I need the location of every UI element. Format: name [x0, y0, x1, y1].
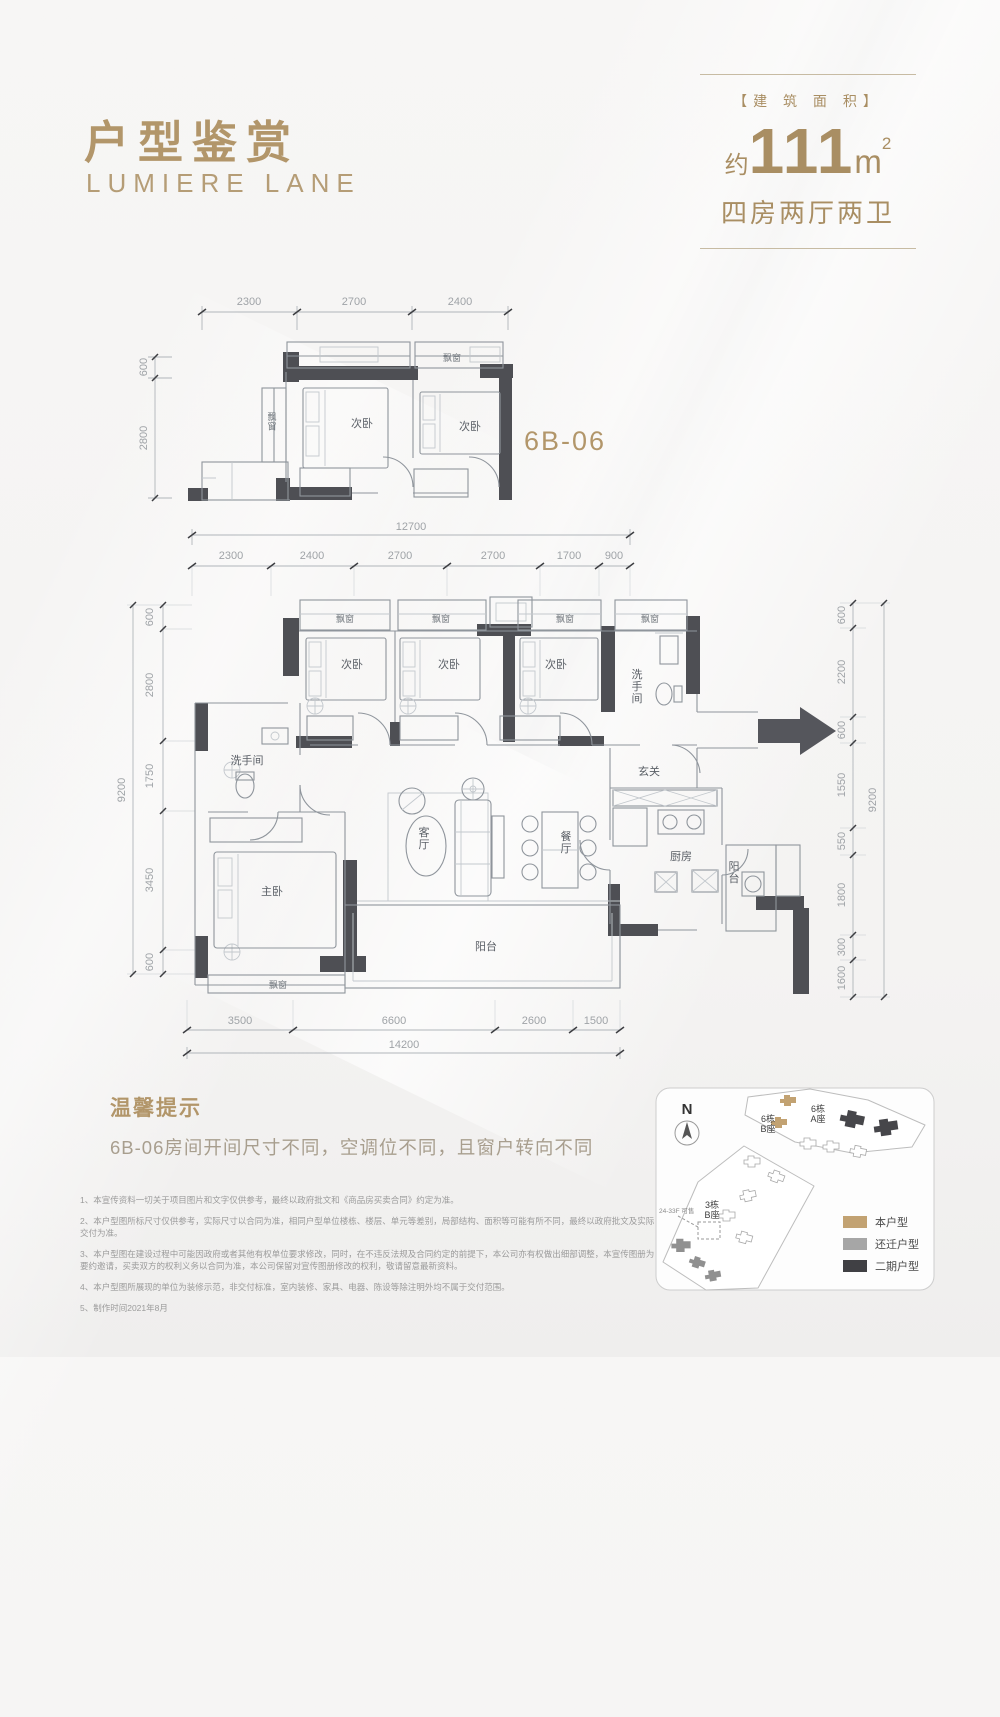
building-label: A座	[810, 1113, 825, 1124]
legend-swatch-phase2	[843, 1260, 867, 1272]
dim-label: 12700	[396, 521, 427, 533]
room-label-living: 客厅	[419, 825, 430, 851]
small-floor-plan: 2300 2700 2400 600 2800	[138, 296, 606, 501]
site-map: N 6栋 B座 6栋 A座	[656, 1088, 934, 1290]
dim-label: 2300	[219, 550, 243, 562]
room-label-balcony: 阳台	[729, 860, 740, 885]
dim-label: 3450	[144, 868, 156, 892]
dim-label: 550	[836, 832, 848, 850]
dim-label: 1800	[836, 883, 848, 907]
room-label-bay: 飘窗	[336, 613, 354, 624]
dim-label: 2700	[388, 550, 412, 562]
dim-label: 2800	[144, 673, 156, 697]
dim-label: 1750	[144, 764, 156, 788]
dim-label: 2700	[481, 550, 505, 562]
room-label-bathroom: 洗手间	[231, 753, 264, 767]
room-label-bay: 飘窗	[267, 412, 276, 432]
disclaimer-item: 3、本户型图在建设过程中可能因政府或者其他有权单位要求修改，同时，在不违反法规及…	[80, 1248, 658, 1272]
dim-label: 600	[144, 608, 156, 626]
dim-label: 1550	[836, 773, 848, 797]
tips-title: 温馨提示	[110, 1092, 202, 1122]
disclaimer-item: 2、本户型图所标尺寸仅供参考，实际尺寸以合同为准，相同户型单位楼栋、楼层、单元等…	[80, 1215, 658, 1239]
room-label-dining: 餐厅	[561, 829, 572, 855]
legend-swatch-current	[843, 1216, 867, 1228]
room-label-bay: 飘窗	[432, 613, 450, 624]
dim-label: 600	[144, 953, 156, 971]
dim-label: 2800	[138, 426, 150, 450]
room-label-entry: 玄关	[638, 764, 660, 778]
site-legend: 本户型 还迁户型 二期户型	[843, 1215, 919, 1273]
room-label-bedroom: 次卧	[438, 657, 460, 671]
room-label-bay: 飘窗	[556, 613, 574, 624]
room-label-kitchen: 厨房	[670, 850, 692, 863]
room-label-bedroom: 次卧	[351, 416, 373, 430]
legend-label: 二期户型	[875, 1259, 919, 1273]
room-label-bay: 飘窗	[443, 352, 461, 363]
room-label-bay: 飘窗	[641, 613, 659, 624]
dim-label: 3500	[228, 1015, 252, 1027]
dim-label: 300	[836, 938, 848, 956]
disclaimer-item: 1、本宣传资料一切关于项目图片和文字仅供参考，最终以政府批文和《商品房买卖合同》…	[80, 1194, 658, 1206]
building-label: 3栋	[705, 1199, 719, 1210]
room-label-balcony: 阳台	[475, 939, 497, 953]
dim-label: 6600	[382, 1015, 406, 1027]
legend-swatch-resettlement	[843, 1238, 867, 1250]
furniture	[210, 633, 764, 960]
building-label: B座	[704, 1209, 719, 1220]
main-floor-plan: 12700 2300 2400 2700 2700 1700 900 600 2…	[116, 521, 890, 1059]
room-label-bedroom: 次卧	[341, 657, 363, 671]
dim-label: 1500	[584, 1015, 608, 1027]
room-label-bathroom: 洗手间	[632, 668, 643, 705]
main-plan-lines	[195, 631, 800, 993]
dim-label: 9200	[116, 778, 128, 802]
entrance-arrow	[758, 707, 836, 755]
dim-label: 2300	[237, 296, 261, 308]
legend-label: 还迁户型	[875, 1237, 919, 1251]
dim-label: 14200	[389, 1039, 420, 1051]
legend-label: 本户型	[875, 1215, 908, 1229]
dim-label: 2400	[300, 550, 324, 562]
dim-label: 2700	[342, 296, 366, 308]
dim-label: 600	[836, 606, 848, 624]
room-label-bedroom: 次卧	[545, 657, 567, 671]
unit-number-label: 6B-06	[524, 426, 606, 456]
disclaimer-item: 4、本户型图所展现的单位为装修示范，非交付标准，室内装修、家具、电器、陈设等除注…	[80, 1281, 658, 1293]
room-label-master: 主卧	[261, 885, 283, 898]
dim-label: 600	[138, 358, 150, 376]
disclaimer-item: 5、制作时间2021年8月	[80, 1302, 658, 1314]
north-label: N	[682, 1101, 693, 1118]
dim-label: 600	[836, 721, 848, 739]
room-label-bedroom: 次卧	[459, 419, 481, 433]
dim-label: 2600	[522, 1015, 546, 1027]
dim-label: 1600	[836, 966, 848, 990]
building-label: 6栋	[811, 1103, 825, 1114]
dim-label: 1700	[557, 550, 581, 562]
building-label: 6栋	[761, 1113, 775, 1124]
building-label: B座	[760, 1123, 775, 1134]
dim-label: 2400	[448, 296, 472, 308]
dim-label: 9200	[867, 788, 879, 812]
dim-label: 900	[605, 550, 623, 562]
dim-label: 2200	[836, 660, 848, 684]
disclaimer-list: 1、本宣传资料一切关于项目图片和文字仅供参考，最终以政府批文和《商品房买卖合同》…	[80, 1194, 658, 1323]
tips-content: 6B-06房间开间尺寸不同，空调位不同，且窗户转向不同	[110, 1134, 593, 1160]
room-label-bay: 飘窗	[269, 979, 287, 990]
sale-floors-note: 24-33F 可售	[659, 1206, 694, 1215]
